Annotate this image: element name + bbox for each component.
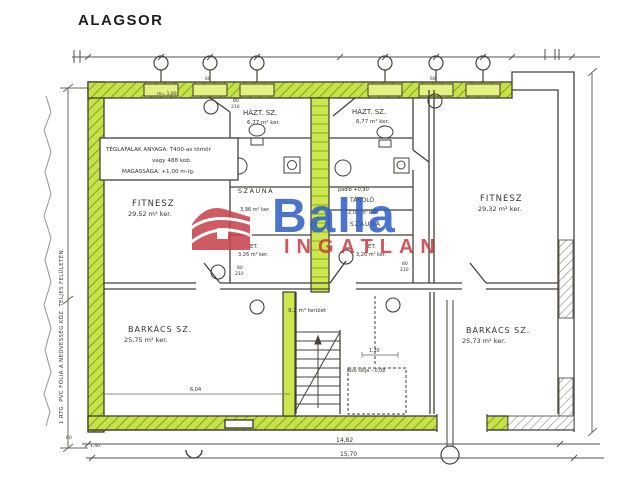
door-tag-height: 210 <box>231 104 240 110</box>
room-fitnesz-right-area: 29,32 m² ker. <box>478 205 521 213</box>
waterproof-note: 1 RTG. PVC FÓLIA A NEDVESSÉG KÖZ. TELJES… <box>57 248 65 424</box>
door-tag-width: 80 <box>402 261 408 267</box>
room-et-left-label: ET. <box>250 244 258 250</box>
room-hazt-left-label: HÁZT. SZ. <box>243 108 277 117</box>
materials-note-line3: MAGASSÁGA: +1,00 m-ig. <box>122 168 195 175</box>
room-hazt-right-label: HÁZT. SZ. <box>352 107 386 116</box>
stair-note: alsó síkja −0,08 <box>347 367 385 374</box>
floor-plan-page: 1 RTG. PVC FÓLIA A NEDVESSÉG KÖZ. TELJES… <box>0 0 624 480</box>
dim-total-inner: 14,82 <box>336 437 353 444</box>
window-width-dim: 60 <box>430 76 436 82</box>
site-boundary-line <box>44 96 51 426</box>
door-tag-height: 210 <box>235 271 244 277</box>
room-fitnesz-left-area: 29,52 m² ker. <box>128 210 171 218</box>
room-tarolo-area: 2,08 m² ker. <box>348 210 379 216</box>
dim-130: 1,30 <box>369 348 380 354</box>
room-et-right-label: ET. <box>368 244 376 250</box>
room-barkacs-left-area: 25,75 m² ker. <box>124 336 167 344</box>
room-hazt-right-area: 6,77 m² ker. <box>356 118 389 125</box>
sill-height-dim: m= 1,80 <box>157 91 177 97</box>
top-dimension-line <box>72 49 600 63</box>
room-hazt-left-area: 6,77 m² ker. <box>247 119 280 126</box>
right-outer-wall <box>88 72 574 432</box>
room-fitnesz-right-label: FITNESZ <box>480 194 523 204</box>
dim-60: 60 <box>66 435 72 441</box>
corridor-area-note: 9,2 m² terület <box>288 307 327 314</box>
door-tag-width: 80 <box>237 265 243 271</box>
floor-plan-svg: 1 RTG. PVC FÓLIA A NEDVESSÉG KÖZ. TELJES… <box>0 0 624 480</box>
room-barkacs-right-area: 25,73 m² ker. <box>462 337 505 345</box>
room-fitnesz-left-label: FITNESZ <box>132 199 175 209</box>
materials-note: TÉGLAFALAK ANYAGA: T400-as tömör vagy 48… <box>100 138 238 180</box>
room-szauna-left-label: SZAUNA <box>238 187 274 195</box>
section-line <box>186 300 459 464</box>
room-szauna-right-label: SZAUNA <box>350 221 381 228</box>
level-note: padló +0,90 <box>338 186 369 193</box>
room-et-right-area: 3,26 m² ker. <box>356 252 387 258</box>
page-title: ALAGSOR <box>78 12 164 29</box>
room-et-left-area: 3,26 m² ker. <box>238 252 269 258</box>
dim-total-outer: 15,70 <box>340 451 357 458</box>
door-tag-width: 80 <box>233 98 239 104</box>
dim-604: 6,04 <box>190 387 201 393</box>
room-szauna-left-area: 3,96 m² ker. <box>240 207 271 213</box>
room-barkacs-left-label: BARKÁCS SZ. <box>128 323 192 334</box>
window-width-dim: 60 <box>205 76 211 82</box>
dimension-texts: 80 210 80 210 80 210 60 60 m= 1,80 6,04 … <box>66 76 436 449</box>
room-tarolo-label: TÁROLÓ <box>349 197 374 204</box>
right-dimension-line <box>588 68 597 436</box>
door-tag-height: 210 <box>400 267 409 273</box>
materials-note-line1: TÉGLAFALAK ANYAGA: T400-as tömör <box>105 145 212 153</box>
outer-walls-green <box>88 82 512 432</box>
room-barkacs-right-label: BARKÁCS SZ. <box>466 324 530 335</box>
materials-note-line2: vagy 488 kob. <box>152 158 192 164</box>
